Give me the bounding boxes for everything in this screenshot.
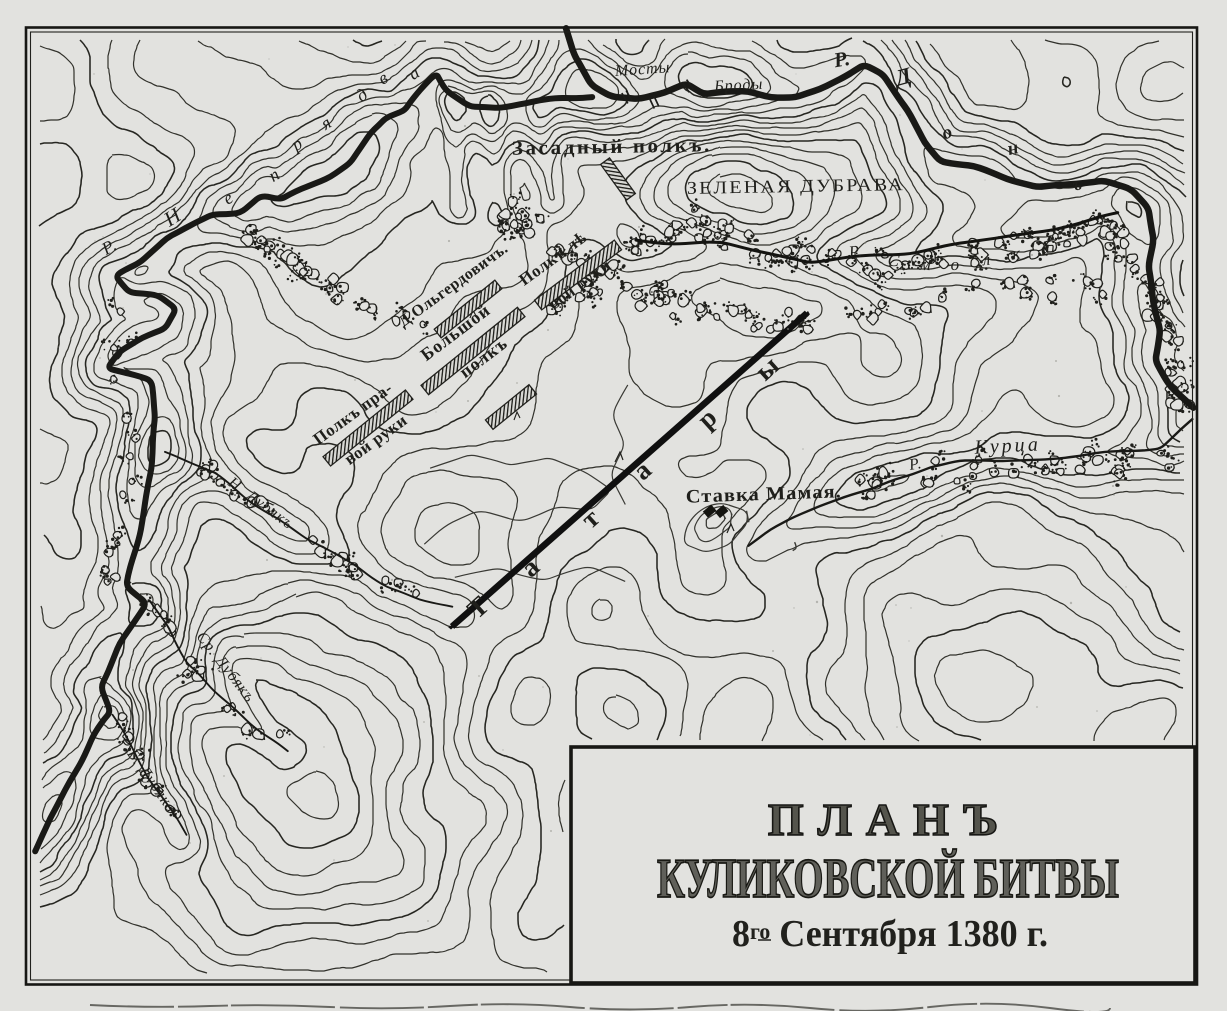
svg-text:Курца: Курца — [973, 433, 1041, 458]
svg-text:Броды: Броды — [713, 76, 764, 96]
svg-text:8го Сентября 1380 г.: 8го Сентября 1380 г. — [732, 913, 1048, 955]
svg-text:ПЛАНЪ: ПЛАНЪ — [768, 794, 1012, 845]
svg-text:С: С — [887, 251, 900, 271]
svg-text:КУЛИКОВСКОЙ БИТВЫ: КУЛИКОВСКОЙ БИТВЫ — [657, 848, 1119, 910]
svg-text:Р.: Р. — [847, 241, 863, 262]
svg-text:о: о — [950, 255, 959, 274]
svg-text:м: м — [918, 255, 931, 274]
svg-text:ЗЕЛЕНАЯ ДУБРАВА: ЗЕЛЕНАЯ ДУБРАВА — [687, 174, 905, 198]
svg-text:Засадный полкъ.: Засадный полкъ. — [512, 134, 712, 159]
